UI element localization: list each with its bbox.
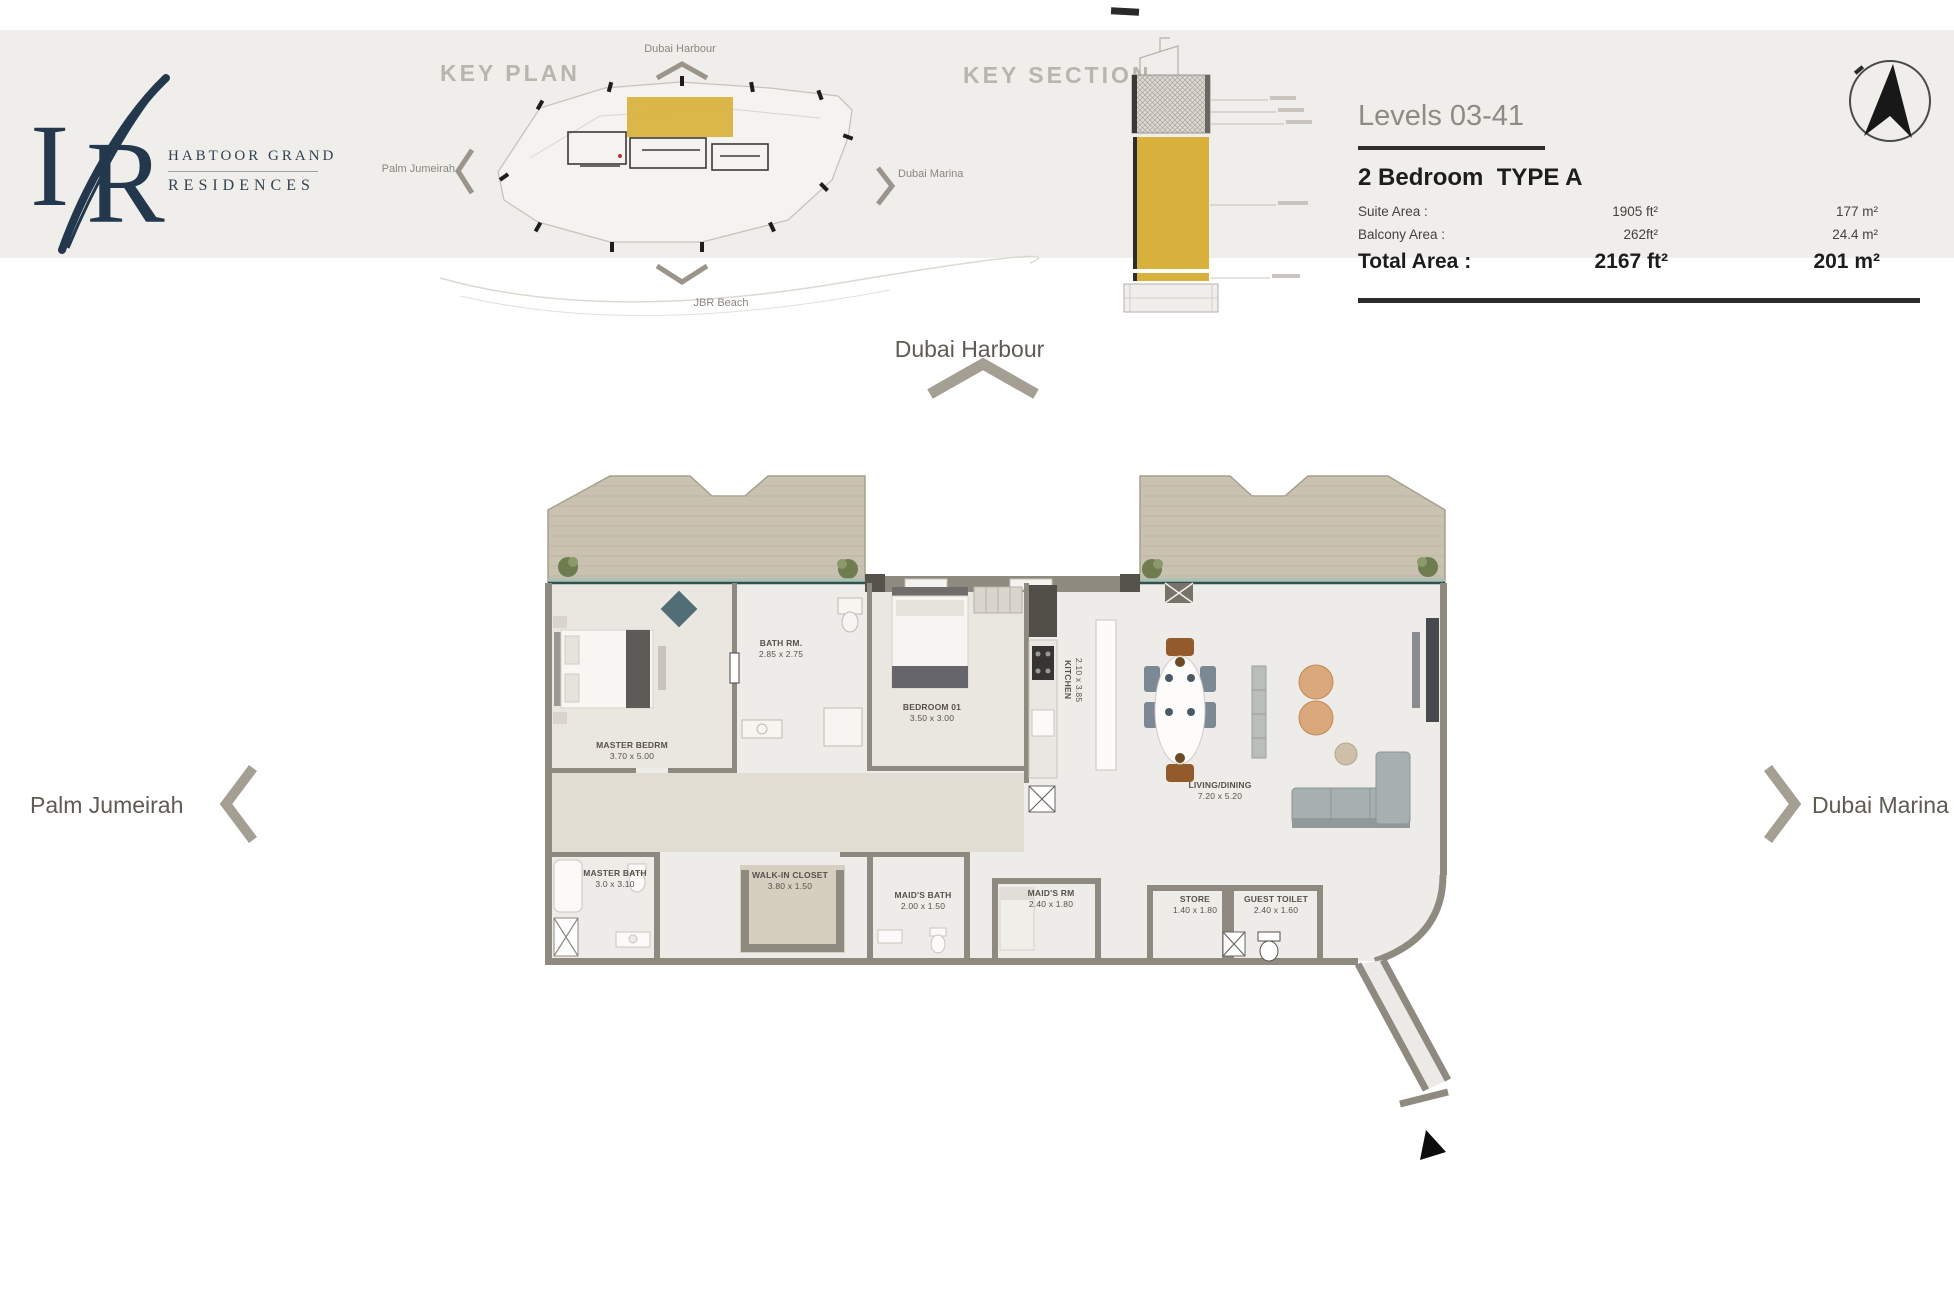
- page-top-mark: [1105, 4, 1155, 22]
- column-2: [1120, 574, 1140, 592]
- balcony-right: [1140, 476, 1445, 583]
- plan-label-top: Dubai Harbour: [887, 336, 1052, 363]
- store-shaft: [1223, 932, 1245, 956]
- north-compass-icon: [1840, 52, 1940, 152]
- entry-corridor-floor: [1360, 960, 1448, 1090]
- key-plan-road: [440, 256, 1039, 301]
- floor-plan-drawing: [540, 470, 1460, 1180]
- room-label-store: STORE 1.40 x 1.80: [1160, 894, 1230, 916]
- room-label-master-bedrm: MASTER BEDRM 3.70 x 5.00: [572, 740, 692, 762]
- chevron-up-icon: [930, 364, 1036, 394]
- levels-underline: [1358, 146, 1545, 150]
- brand-name-line2: RESIDENCES: [168, 177, 338, 195]
- room-label-kitchen: KITCHEN 2.10 x 3.85: [1062, 638, 1088, 722]
- chevron-right-icon: [1768, 768, 1795, 840]
- brand-rule: [168, 171, 318, 172]
- bedroom01-wardrobe: [974, 587, 1022, 613]
- balcony-area-label: Balcony Area :: [1358, 227, 1445, 242]
- room-label-bedroom-01: BEDROOM 01 3.50 x 3.00: [872, 702, 992, 724]
- room-label-bath-rm: BATH RM. 2.85 x 2.75: [721, 638, 841, 660]
- tower-upper-edge-left: [1132, 75, 1137, 133]
- brand-name-line1: HABTOOR GRAND: [168, 148, 338, 165]
- key-plan-label-right: Dubai Marina: [898, 168, 1008, 180]
- room-label-maids-rm: MAID'S RM 2.40 x 1.80: [996, 888, 1106, 910]
- suite-area-m: 177 m²: [1788, 204, 1878, 219]
- key-plan-map: [420, 38, 1040, 328]
- key-plan-marker-dot: [618, 154, 622, 158]
- total-area-ft: 2167 ft²: [1528, 250, 1668, 274]
- brand-logo: I R: [28, 70, 188, 260]
- monogram-left-letter: I: [30, 100, 69, 231]
- balcony-area-row: Balcony Area : 262ft² 24.4 m²: [1358, 227, 1933, 242]
- suite-area-label: Suite Area :: [1358, 204, 1428, 219]
- tower-highlight-strip: [1133, 273, 1209, 281]
- tower-leader-lines: [1210, 100, 1284, 278]
- room-label-maids-bath: MAID'S BATH 2.00 x 1.50: [868, 890, 978, 912]
- living-column: [1165, 583, 1193, 603]
- guest-toilet-fixtures: [1258, 932, 1280, 961]
- suite-area-ft: 1905 ft²: [1568, 204, 1658, 219]
- brand-text: HABTOOR GRAND RESIDENCES: [168, 148, 338, 195]
- floorplan-page: I R HABTOOR GRAND RESIDENCES KEY PLAN: [0, 0, 1954, 1300]
- plan-label-left: Palm Jumeirah: [30, 792, 210, 819]
- brand-monogram: I R: [28, 70, 188, 255]
- bedroom01-bed: [892, 587, 968, 688]
- balcony-left: [548, 476, 865, 583]
- suite-area-row: Suite Area : 1905 ft² 177 m²: [1358, 204, 1933, 219]
- key-plan-label-left: Palm Jumeirah: [350, 163, 455, 175]
- master-bed: [553, 616, 666, 724]
- key-section-tower: [1100, 30, 1400, 330]
- corridor-floor: [552, 773, 1024, 852]
- tower-highlight-levels: [1133, 137, 1209, 269]
- plan-label-right: Dubai Marina: [1812, 792, 1952, 819]
- tower-upper-levels: [1132, 75, 1210, 133]
- shelf-divider: [1252, 666, 1266, 758]
- tower-highlight-edge: [1133, 137, 1137, 269]
- unit-type-heading: 2 Bedroom TYPE A: [1358, 164, 1582, 192]
- balcony-area-m: 24.4 m²: [1788, 227, 1878, 242]
- entrance-arrow-icon: [1420, 1130, 1446, 1160]
- room-label-guest-toilet: GUEST TOILET 2.40 x 1.60: [1228, 894, 1324, 916]
- room-label-walk-in-closet: WALK-IN CLOSET 3.80 x 1.50: [750, 870, 830, 892]
- key-plan-unit-highlight: [627, 97, 733, 137]
- info-bottom-rule: [1358, 298, 1920, 303]
- total-area-m: 201 m²: [1758, 250, 1880, 274]
- key-plan-label-top: Dubai Harbour: [630, 43, 730, 55]
- tower-upper-edge-right: [1205, 75, 1210, 133]
- balcony-area-ft: 262ft²: [1568, 227, 1658, 242]
- room-label-master-bath: MASTER BATH 3.0 x 3.10: [580, 868, 650, 890]
- key-plan-label-bottom: JBR Beach: [671, 297, 771, 309]
- tower-roof: [1140, 38, 1178, 75]
- chevron-left-icon: [226, 768, 253, 840]
- tower-leader-tags: [1270, 96, 1312, 278]
- room-label-living-dining: LIVING/DINING 7.20 x 5.20: [1160, 780, 1280, 802]
- total-area-row: Total Area : 2167 ft² 201 m²: [1358, 250, 1933, 274]
- tower-strip-edge: [1133, 273, 1137, 281]
- total-area-label: Total Area :: [1358, 250, 1471, 273]
